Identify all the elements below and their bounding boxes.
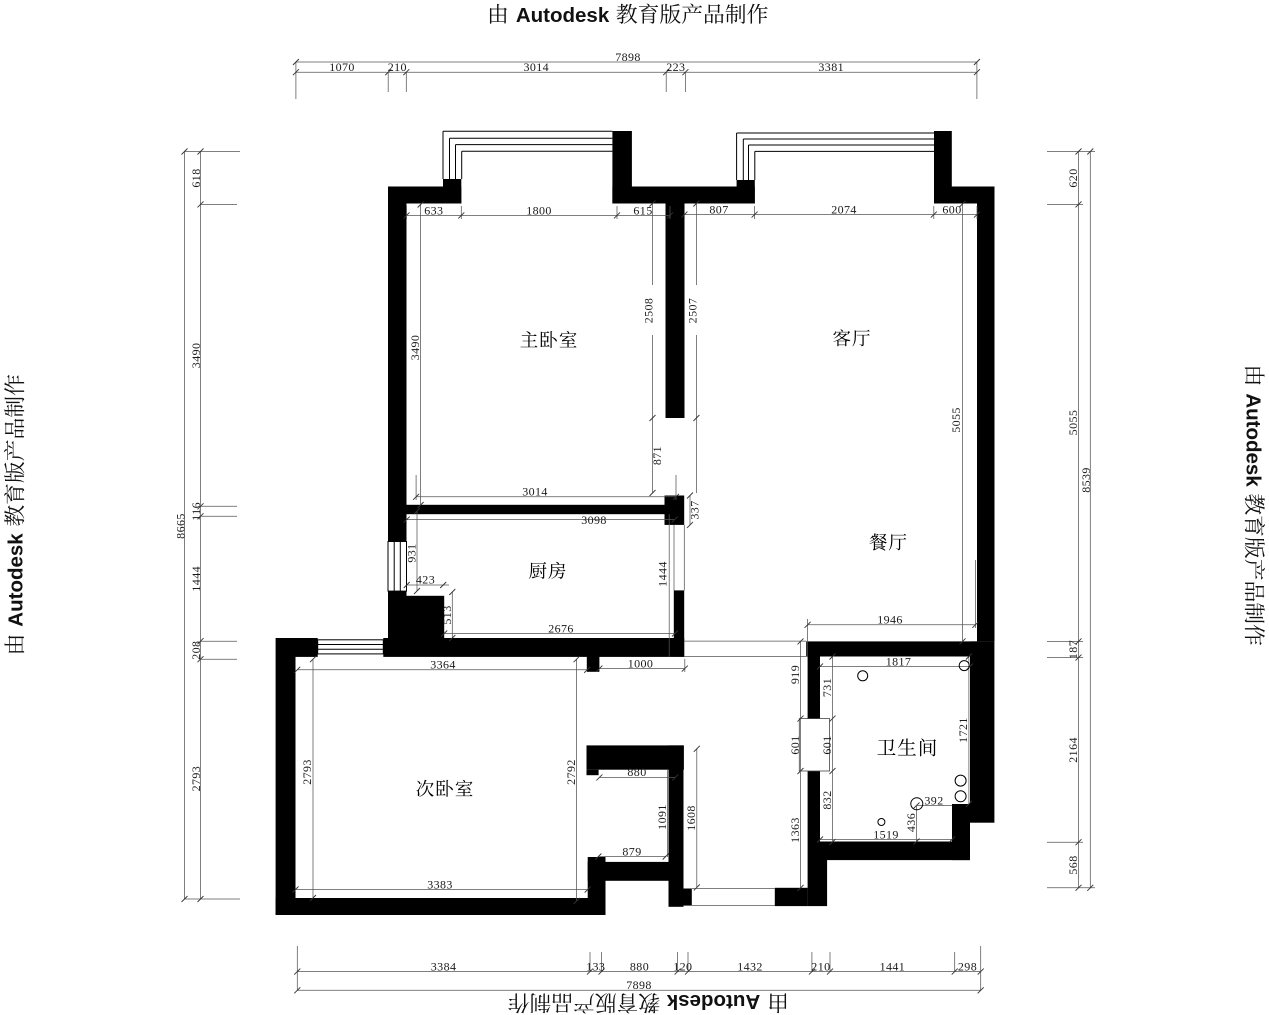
svg-text:3381: 3381 bbox=[818, 60, 844, 74]
svg-text:337: 337 bbox=[688, 500, 702, 519]
svg-text:5055: 5055 bbox=[1066, 410, 1080, 436]
svg-text:3014: 3014 bbox=[522, 484, 548, 498]
svg-text:116: 116 bbox=[189, 502, 203, 521]
svg-text:5055: 5055 bbox=[949, 407, 963, 433]
svg-text:392: 392 bbox=[924, 793, 943, 807]
svg-text:223: 223 bbox=[666, 60, 685, 74]
svg-text:2508: 2508 bbox=[642, 298, 656, 324]
svg-text:210: 210 bbox=[388, 60, 407, 74]
svg-text:1800: 1800 bbox=[526, 203, 552, 217]
svg-text:1000: 1000 bbox=[628, 656, 654, 670]
svg-text:133: 133 bbox=[586, 959, 605, 973]
svg-text:618: 618 bbox=[189, 168, 203, 187]
svg-text:1363: 1363 bbox=[788, 817, 802, 843]
svg-text:2793: 2793 bbox=[189, 766, 203, 792]
svg-text:832: 832 bbox=[820, 790, 834, 809]
svg-text:3383: 3383 bbox=[427, 877, 453, 891]
svg-text:633: 633 bbox=[424, 203, 443, 217]
svg-text:601: 601 bbox=[788, 735, 802, 754]
svg-text:210: 210 bbox=[811, 959, 830, 973]
svg-text:8665: 8665 bbox=[173, 513, 187, 539]
svg-text:436: 436 bbox=[904, 813, 918, 832]
svg-text:3364: 3364 bbox=[430, 658, 456, 672]
svg-text:2074: 2074 bbox=[831, 203, 857, 217]
svg-text:208: 208 bbox=[189, 641, 203, 660]
svg-text:871: 871 bbox=[650, 446, 664, 465]
svg-text:1070: 1070 bbox=[329, 60, 355, 74]
svg-text:423: 423 bbox=[416, 573, 435, 587]
svg-text:3384: 3384 bbox=[431, 959, 457, 973]
svg-text:2164: 2164 bbox=[1066, 737, 1080, 763]
svg-text:3014: 3014 bbox=[523, 60, 549, 74]
svg-text:568: 568 bbox=[1066, 855, 1080, 874]
svg-text:120: 120 bbox=[673, 959, 692, 973]
svg-text:880: 880 bbox=[627, 765, 646, 779]
svg-text:1441: 1441 bbox=[880, 959, 906, 973]
svg-text:2507: 2507 bbox=[686, 298, 700, 324]
svg-text:880: 880 bbox=[630, 959, 649, 973]
svg-text:298: 298 bbox=[958, 959, 977, 973]
svg-text:919: 919 bbox=[788, 665, 802, 684]
svg-text:1444: 1444 bbox=[656, 561, 670, 587]
svg-text:2676: 2676 bbox=[548, 621, 574, 635]
svg-text:620: 620 bbox=[1066, 168, 1080, 187]
svg-text:615: 615 bbox=[633, 203, 652, 217]
svg-text:1721: 1721 bbox=[956, 717, 970, 743]
svg-text:3098: 3098 bbox=[581, 513, 607, 527]
svg-text:931: 931 bbox=[405, 543, 419, 562]
svg-text:600: 600 bbox=[942, 203, 961, 217]
svg-text:3490: 3490 bbox=[408, 335, 422, 361]
svg-text:3490: 3490 bbox=[189, 343, 203, 369]
svg-text:513: 513 bbox=[440, 605, 454, 624]
svg-text:1091: 1091 bbox=[655, 804, 669, 830]
svg-text:879: 879 bbox=[622, 844, 641, 858]
svg-text:601: 601 bbox=[820, 735, 834, 754]
svg-text:2792: 2792 bbox=[564, 759, 578, 785]
svg-text:731: 731 bbox=[820, 678, 834, 697]
svg-text:1946: 1946 bbox=[877, 613, 903, 627]
svg-text:1444: 1444 bbox=[189, 566, 203, 592]
svg-text:7898: 7898 bbox=[615, 50, 641, 64]
svg-text:2793: 2793 bbox=[300, 759, 314, 785]
svg-text:187: 187 bbox=[1066, 640, 1080, 659]
svg-text:1432: 1432 bbox=[737, 959, 763, 973]
svg-text:8539: 8539 bbox=[1079, 467, 1093, 493]
svg-text:807: 807 bbox=[709, 203, 728, 217]
svg-text:1608: 1608 bbox=[684, 805, 698, 831]
svg-text:7898: 7898 bbox=[626, 978, 652, 992]
svg-text:1817: 1817 bbox=[886, 654, 912, 668]
svg-text:1519: 1519 bbox=[873, 827, 899, 841]
